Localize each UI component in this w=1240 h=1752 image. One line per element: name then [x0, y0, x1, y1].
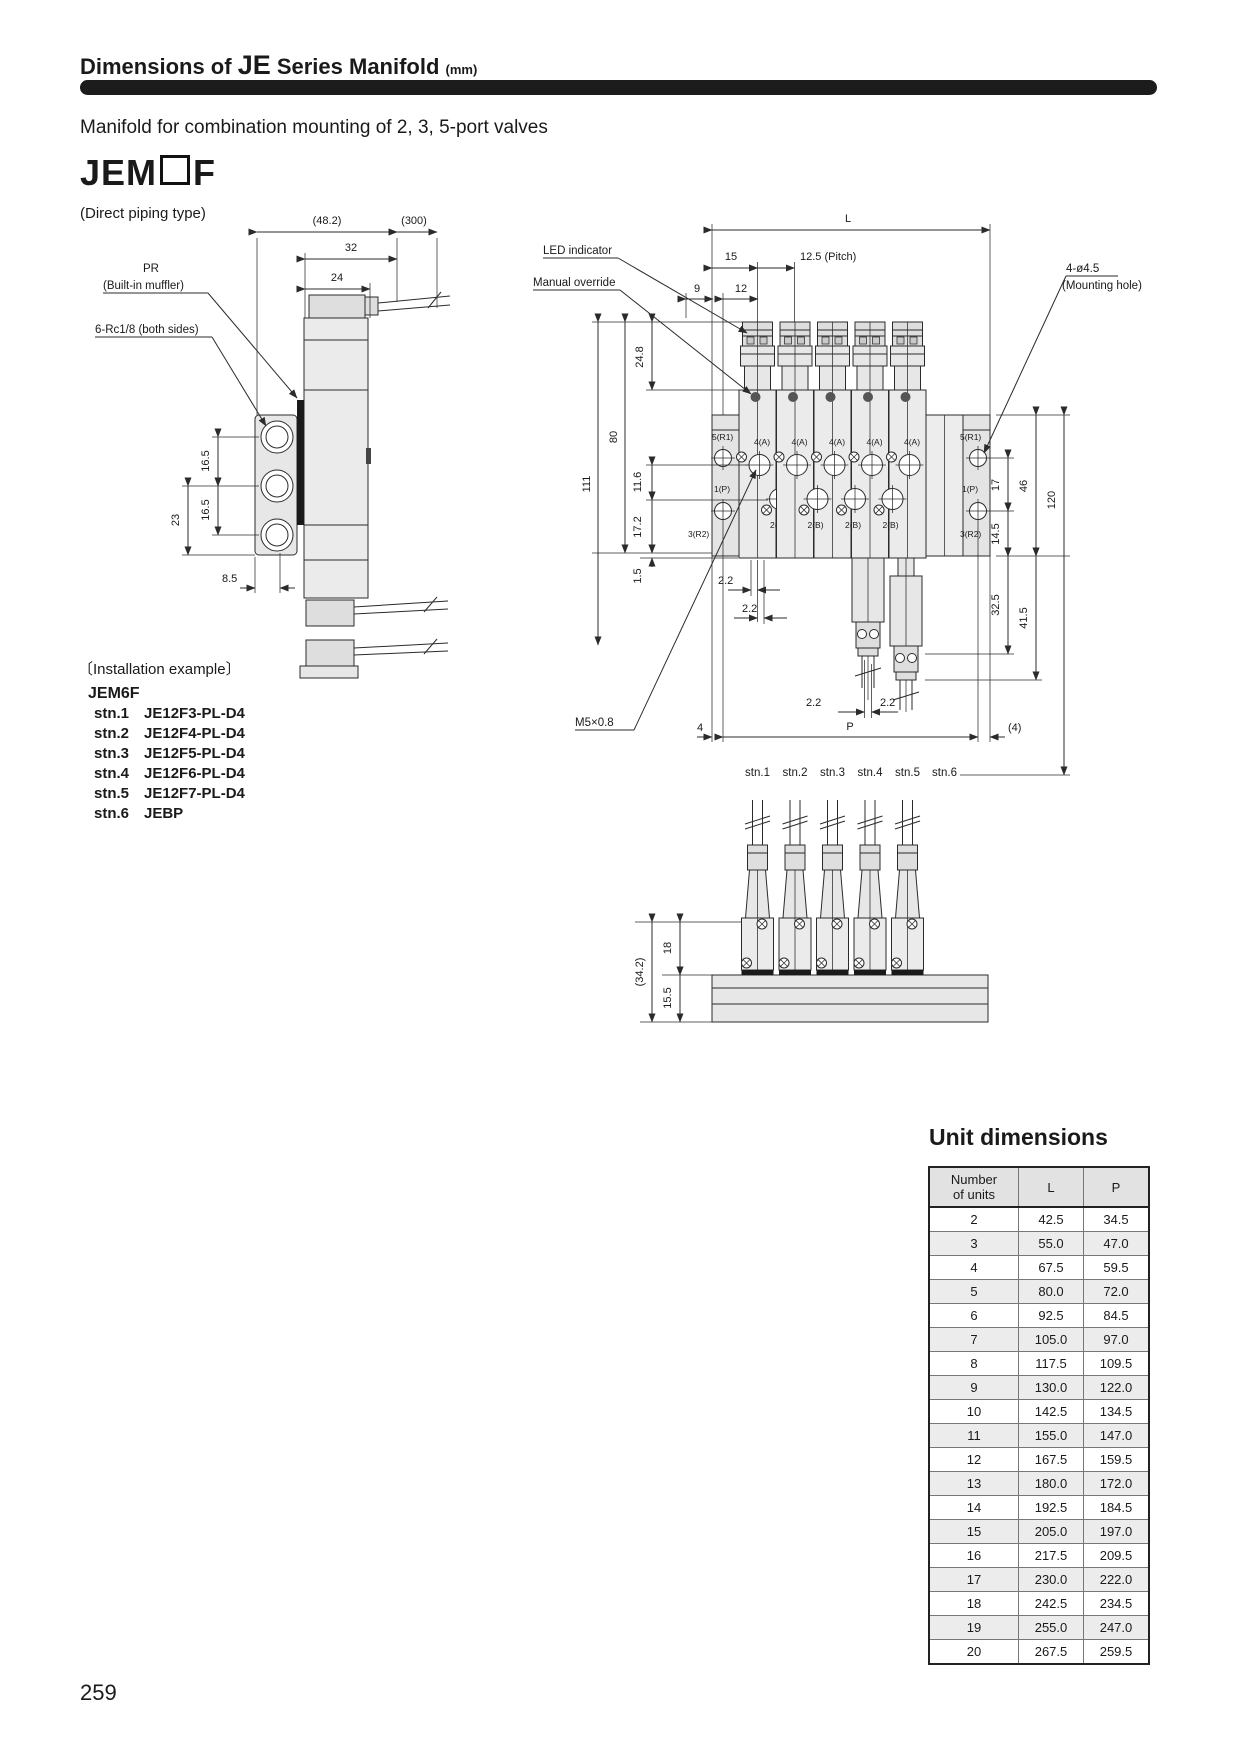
- port-b-label: 2(B): [845, 520, 861, 530]
- table-cell: 259.5: [1084, 1640, 1150, 1665]
- table-row: 15205.0197.0: [929, 1520, 1149, 1544]
- table-cell: 11: [929, 1424, 1019, 1448]
- table-cell: 122.0: [1084, 1376, 1150, 1400]
- table-cell: 117.5: [1019, 1352, 1084, 1376]
- dim-8-5: 8.5: [222, 573, 237, 585]
- mounting-hole-note: (Mounting hole): [1062, 280, 1142, 292]
- table-cell: 172.0: [1084, 1472, 1150, 1496]
- table-cell: 3: [929, 1232, 1019, 1256]
- dim-2-2: 2.2: [880, 697, 895, 709]
- port-b-label: 2(B): [808, 520, 824, 530]
- installation-row: stn.5JE12F7-PL-D4: [94, 784, 245, 804]
- table-row: 14192.5184.5: [929, 1496, 1149, 1520]
- dim-23: 23: [170, 514, 182, 526]
- side-view-structure: [255, 292, 450, 678]
- dim-46: 46: [1018, 480, 1030, 492]
- pr-label: PR: [143, 263, 159, 275]
- bottom-valve: [779, 800, 811, 975]
- page-title-unit: (mm): [446, 62, 478, 77]
- dim-24-8: 24.8: [634, 346, 646, 367]
- dim-4-paren: (4): [1008, 722, 1021, 734]
- installation-part-number: JE12F3-PL-D4: [144, 705, 245, 722]
- table-cell: 209.5: [1084, 1544, 1150, 1568]
- bottom-valve: [892, 800, 924, 975]
- table-cell: 19: [929, 1616, 1019, 1640]
- table-cell: 234.5: [1084, 1592, 1150, 1616]
- table-cell: 67.5: [1019, 1256, 1084, 1280]
- table-cell: 17: [929, 1568, 1019, 1592]
- table-cell: 7: [929, 1328, 1019, 1352]
- table-cell: 142.5: [1019, 1400, 1084, 1424]
- unit-dimensions-title: Unit dimensions: [929, 1124, 1108, 1151]
- port-a-label: 4(A): [829, 437, 845, 447]
- rc-port-label: 6-Rc1/8 (both sides): [95, 324, 199, 336]
- manual-override-label: Manual override: [533, 277, 615, 289]
- installation-part-number: JEBP: [144, 805, 183, 822]
- port-a-label: 4(A): [904, 437, 920, 447]
- table-row: 13180.0172.0: [929, 1472, 1149, 1496]
- table-cell: 247.0: [1084, 1616, 1150, 1640]
- dim-L: L: [845, 213, 851, 225]
- dim-17-2: 17.2: [632, 516, 644, 537]
- table-cell: 5: [929, 1280, 1019, 1304]
- station-label: stn.4: [858, 767, 884, 779]
- installation-model: JEM6F: [88, 684, 245, 704]
- port-r1-label: 5(R1): [712, 432, 733, 442]
- model-option-box: [160, 155, 190, 185]
- down-valve-2: [890, 556, 922, 712]
- table-cell: 159.5: [1084, 1448, 1150, 1472]
- installation-station: stn.1: [94, 704, 144, 724]
- table-cell: 130.0: [1019, 1376, 1084, 1400]
- side-view-drawing: (48.2) (300) 32 24 16.5 16.5 23 8.5 PR (…: [60, 185, 480, 685]
- table-cell: 217.5: [1019, 1544, 1084, 1568]
- table-row: 20267.5259.5: [929, 1640, 1149, 1665]
- pr-note: (Built-in muffler): [103, 280, 184, 292]
- table-cell: 6: [929, 1304, 1019, 1328]
- table-cell: 8: [929, 1352, 1019, 1376]
- table-cell: 184.5: [1084, 1496, 1150, 1520]
- dim-12: 12: [735, 283, 747, 295]
- side-view-callouts: PR (Built-in muffler) 6-Rc1/8 (both side…: [95, 263, 297, 426]
- table-cell: 230.0: [1019, 1568, 1084, 1592]
- table-cell: 9: [929, 1376, 1019, 1400]
- page-title-rest: Series Manifold: [271, 54, 446, 79]
- dim-2-2: 2.2: [742, 603, 757, 615]
- installation-row: stn.2JE12F4-PL-D4: [94, 724, 245, 744]
- dim-2-2: 2.2: [806, 697, 821, 709]
- installation-part-number: JE12F6-PL-D4: [144, 765, 245, 782]
- table-cell: 47.0: [1084, 1232, 1150, 1256]
- table-row: 692.584.5: [929, 1304, 1149, 1328]
- table-row: 10142.5134.5: [929, 1400, 1149, 1424]
- dim-17: 17: [990, 479, 1002, 491]
- port-p-label: 1(P): [714, 484, 730, 494]
- table-row: 16217.5209.5: [929, 1544, 1149, 1568]
- dim-300: (300): [401, 215, 427, 227]
- table-row: 9130.0122.0: [929, 1376, 1149, 1400]
- table-cell: 255.0: [1019, 1616, 1084, 1640]
- port-r2-label: 3(R2): [688, 529, 709, 539]
- col-header-line2: of units: [953, 1187, 995, 1202]
- table-row: 355.047.0: [929, 1232, 1149, 1256]
- page-number: 259: [80, 1680, 117, 1706]
- dim-111: 111: [581, 476, 593, 493]
- col-header-line1: Number: [951, 1172, 997, 1187]
- installation-station: stn.3: [94, 744, 144, 764]
- dim-4: 4: [697, 722, 703, 734]
- page-title-series: JE: [238, 50, 271, 80]
- page-title-prefix: Dimensions of: [80, 54, 238, 79]
- table-cell: 242.5: [1019, 1592, 1084, 1616]
- table-cell: 109.5: [1084, 1352, 1150, 1376]
- dim-11-6: 11.6: [632, 472, 644, 493]
- table-cell: 180.0: [1019, 1472, 1084, 1496]
- table-cell: 134.5: [1084, 1400, 1150, 1424]
- thread-label: M5×0.8: [575, 717, 614, 729]
- table-cell: 155.0: [1019, 1424, 1084, 1448]
- table-row: 8117.5109.5: [929, 1352, 1149, 1376]
- installation-station: stn.4: [94, 764, 144, 784]
- table-cell: 20: [929, 1640, 1019, 1665]
- table-cell: 55.0: [1019, 1232, 1084, 1256]
- front-view-drawing: 4(A) 2(B) 5(R1) 1(P) 3(R2) 5(R1) 1(P): [520, 195, 1160, 795]
- dim-48-2: (48.2): [313, 215, 342, 227]
- table-cell: 15: [929, 1520, 1019, 1544]
- installation-part-number: JE12F7-PL-D4: [144, 785, 245, 802]
- dim-15: 15: [725, 251, 737, 263]
- installation-part-number: JE12F4-PL-D4: [144, 725, 245, 742]
- table-cell: 34.5: [1084, 1207, 1150, 1232]
- installation-rows: stn.1JE12F3-PL-D4stn.2JE12F4-PL-D4stn.3J…: [78, 704, 245, 824]
- installation-row: stn.4JE12F6-PL-D4: [94, 764, 245, 784]
- station-label: stn.3: [820, 767, 845, 779]
- table-cell: 18: [929, 1592, 1019, 1616]
- col-header-P: P: [1084, 1167, 1150, 1207]
- bottom-valve: [854, 800, 886, 975]
- bottom-view-structure: [712, 975, 988, 1022]
- port-b-label: 2(B): [883, 520, 899, 530]
- station-labels: stn.1 stn.2 stn.3 stn.4 stn.5 stn.6: [745, 767, 957, 779]
- dim-16-5-a: 16.5: [200, 450, 212, 471]
- installation-station: stn.2: [94, 724, 144, 744]
- dim-18: 18: [662, 942, 674, 954]
- station-label: stn.2: [783, 767, 808, 779]
- table-cell: 13: [929, 1472, 1019, 1496]
- station-label: stn.5: [895, 767, 920, 779]
- page-title: Dimensions of JE Series Manifold (mm): [80, 50, 477, 81]
- station-label: stn.1: [745, 767, 770, 779]
- table-cell: 14: [929, 1496, 1019, 1520]
- dim-14-5: 14.5: [990, 523, 1002, 544]
- table-cell: 92.5: [1019, 1304, 1084, 1328]
- table-cell: 42.5: [1019, 1207, 1084, 1232]
- dim-32: 32: [345, 242, 357, 254]
- port-a-label: 4(A): [792, 437, 808, 447]
- table-cell: 59.5: [1084, 1256, 1150, 1280]
- table-cell: 10: [929, 1400, 1019, 1424]
- table-cell: 84.5: [1084, 1304, 1150, 1328]
- port-a-label: 4(A): [867, 437, 883, 447]
- col-header-number-of-units: Numberof units: [929, 1167, 1019, 1207]
- dim-120: 120: [1046, 491, 1058, 509]
- unit-dimensions-body: 242.534.5355.047.0467.559.5580.072.0692.…: [929, 1207, 1149, 1664]
- dim-24: 24: [331, 272, 343, 284]
- bottom-valve: [742, 800, 774, 975]
- bottom-valve: [817, 800, 849, 975]
- dim-34-2: (34.2): [634, 958, 646, 987]
- down-valve-1: [852, 556, 884, 700]
- intro-text: Manifold for combination mounting of 2, …: [80, 117, 548, 139]
- installation-row: stn.1JE12F3-PL-D4: [94, 704, 245, 724]
- port-a-label: 4(A): [754, 437, 770, 447]
- table-cell: 2: [929, 1207, 1019, 1232]
- table-row: 12167.5159.5: [929, 1448, 1149, 1472]
- table-row: 467.559.5: [929, 1256, 1149, 1280]
- table-cell: 267.5: [1019, 1640, 1084, 1665]
- table-cell: 197.0: [1084, 1520, 1150, 1544]
- table-cell: 147.0: [1084, 1424, 1150, 1448]
- mounting-hole-label: 4-ø4.5: [1066, 263, 1099, 275]
- port-r1-label: 5(R1): [960, 432, 981, 442]
- table-cell: 205.0: [1019, 1520, 1084, 1544]
- unit-dimensions-table: Numberof units L P 242.534.5355.047.0467…: [928, 1166, 1150, 1665]
- table-cell: 12: [929, 1448, 1019, 1472]
- dim-P: P: [846, 721, 853, 733]
- dim-9: 9: [694, 283, 700, 295]
- dim-16-5-b: 16.5: [200, 499, 212, 520]
- table-cell: 80.0: [1019, 1280, 1084, 1304]
- table-cell: 16: [929, 1544, 1019, 1568]
- dim-pitch: 12.5 (Pitch): [800, 251, 856, 263]
- dim-32-5: 32.5: [990, 594, 1002, 615]
- dim-80: 80: [608, 431, 620, 443]
- table-cell: 192.5: [1019, 1496, 1084, 1520]
- table-cell: 4: [929, 1256, 1019, 1280]
- table-row: 18242.5234.5: [929, 1592, 1149, 1616]
- port-p-label: 1(P): [962, 484, 978, 494]
- station-label: stn.6: [932, 767, 957, 779]
- installation-row: stn.6JEBP: [94, 804, 245, 824]
- installation-station: stn.6: [94, 804, 144, 824]
- dim-41-5: 41.5: [1018, 607, 1030, 628]
- dim-1-5: 1.5: [632, 568, 644, 583]
- table-row: 19255.0247.0: [929, 1616, 1149, 1640]
- table-cell: 72.0: [1084, 1280, 1150, 1304]
- table-row: 7105.097.0: [929, 1328, 1149, 1352]
- header-rule-bar: [80, 80, 1157, 95]
- bottom-view-drawing: (34.2) 18 15.5: [550, 780, 1010, 1030]
- dim-2-2: 2.2: [718, 575, 733, 587]
- table-row: 580.072.0: [929, 1280, 1149, 1304]
- table-row: 11155.0147.0: [929, 1424, 1149, 1448]
- dim-15-5: 15.5: [662, 987, 674, 1008]
- table-row: 17230.0222.0: [929, 1568, 1149, 1592]
- table-row: 242.534.5: [929, 1207, 1149, 1232]
- table-cell: 167.5: [1019, 1448, 1084, 1472]
- table-cell: 97.0: [1084, 1328, 1150, 1352]
- table-cell: 222.0: [1084, 1568, 1150, 1592]
- installation-station: stn.5: [94, 784, 144, 804]
- col-header-L: L: [1019, 1167, 1084, 1207]
- installation-part-number: JE12F5-PL-D4: [144, 745, 245, 762]
- table-cell: 105.0: [1019, 1328, 1084, 1352]
- installation-row: stn.3JE12F5-PL-D4: [94, 744, 245, 764]
- led-indicator-label: LED indicator: [543, 245, 612, 257]
